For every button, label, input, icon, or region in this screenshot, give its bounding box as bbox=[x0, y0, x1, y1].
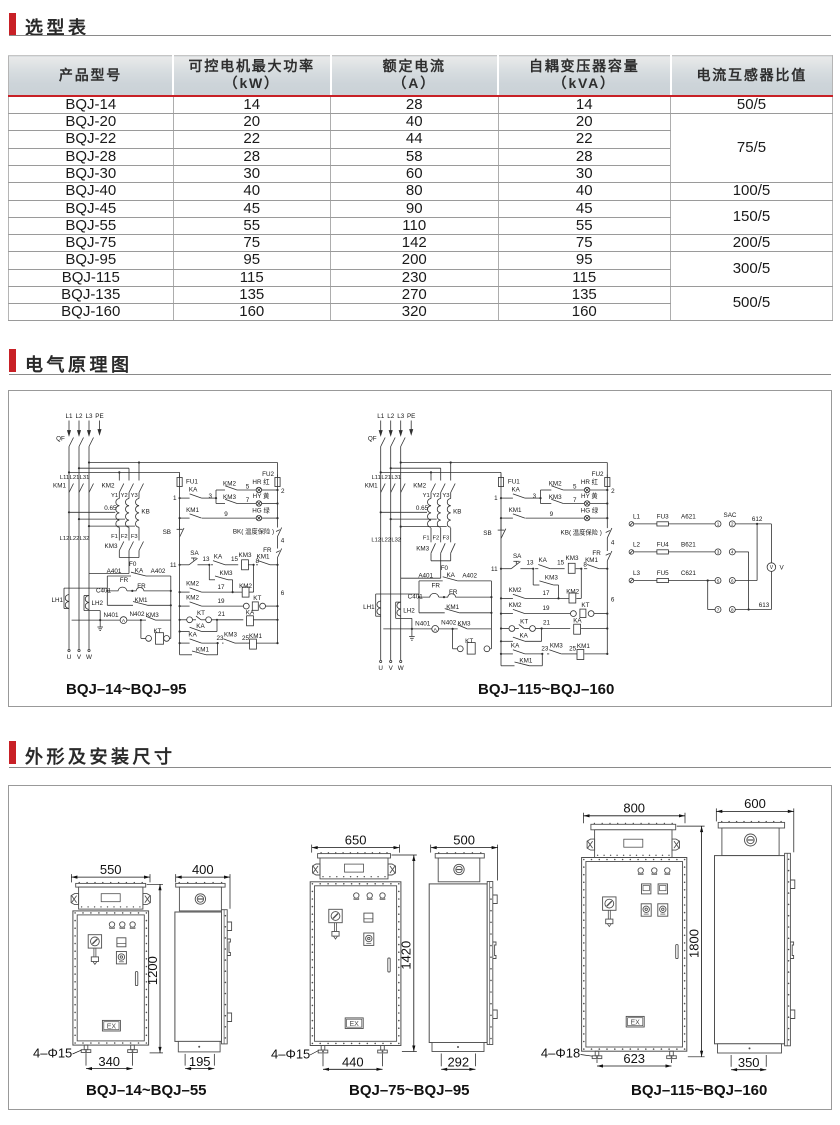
svg-text:1200: 1200 bbox=[145, 956, 160, 985]
svg-text:KM1: KM1 bbox=[577, 643, 590, 650]
svg-text:6: 6 bbox=[731, 578, 734, 583]
svg-text:L1: L1 bbox=[65, 413, 73, 420]
svg-text:FR: FR bbox=[431, 582, 440, 589]
svg-text:BK( 温度保险 ): BK( 温度保险 ) bbox=[233, 526, 274, 535]
svg-text:KB( 温度保险 ): KB( 温度保险 ) bbox=[561, 527, 602, 536]
svg-text:17: 17 bbox=[217, 583, 225, 590]
svg-text:KM2: KM2 bbox=[186, 580, 199, 587]
svg-text:HG 绿: HG 绿 bbox=[252, 505, 270, 514]
svg-text:N401: N401 bbox=[415, 620, 431, 627]
svg-text:KM2: KM2 bbox=[566, 588, 579, 595]
svg-text:L3: L3 bbox=[633, 570, 641, 577]
svg-text:V: V bbox=[770, 565, 774, 571]
svg-text:KA: KA bbox=[189, 486, 198, 493]
svg-text:Y2: Y2 bbox=[121, 493, 128, 499]
svg-text:FR: FR bbox=[137, 583, 146, 590]
svg-text:V: V bbox=[389, 665, 394, 672]
svg-text:L11: L11 bbox=[372, 475, 381, 481]
svg-text:7: 7 bbox=[573, 497, 577, 504]
svg-text:FU4: FU4 bbox=[657, 541, 669, 548]
svg-text:613: 613 bbox=[759, 602, 770, 609]
svg-text:L31: L31 bbox=[391, 475, 401, 481]
svg-text:Y3: Y3 bbox=[442, 493, 449, 499]
svg-text:5: 5 bbox=[573, 483, 577, 490]
svg-text:HY 黄: HY 黄 bbox=[253, 490, 270, 499]
svg-text:4–Φ18: 4–Φ18 bbox=[541, 1046, 580, 1061]
svg-text:F1: F1 bbox=[423, 535, 430, 541]
svg-text:KB: KB bbox=[141, 508, 149, 515]
svg-text:HY 黄: HY 黄 bbox=[581, 490, 598, 499]
svg-text:KM3: KM3 bbox=[105, 543, 118, 550]
svg-text:KA: KA bbox=[196, 623, 205, 630]
svg-text:W: W bbox=[86, 654, 92, 661]
svg-text:KM2: KM2 bbox=[223, 480, 236, 487]
svg-text:SAC: SAC bbox=[724, 512, 737, 519]
svg-text:623: 623 bbox=[623, 1051, 645, 1066]
svg-text:L3: L3 bbox=[85, 413, 93, 420]
svg-text:N401: N401 bbox=[103, 612, 119, 619]
svg-text:L31: L31 bbox=[80, 475, 90, 481]
svg-text:KM2: KM2 bbox=[509, 602, 522, 609]
svg-text:600: 600 bbox=[744, 796, 766, 811]
svg-text:L11: L11 bbox=[60, 475, 69, 481]
svg-text:KM3: KM3 bbox=[224, 631, 237, 638]
svg-text:FU1: FU1 bbox=[186, 478, 198, 485]
svg-text:KA: KA bbox=[214, 553, 223, 560]
svg-text:17: 17 bbox=[542, 589, 550, 596]
svg-text:KT: KT bbox=[253, 595, 261, 602]
svg-text:FU5: FU5 bbox=[657, 570, 669, 577]
svg-text:V: V bbox=[780, 564, 785, 571]
svg-text:KA: KA bbox=[188, 631, 197, 638]
svg-text:4: 4 bbox=[731, 549, 734, 554]
svg-text:340: 340 bbox=[98, 1054, 120, 1069]
svg-text:19: 19 bbox=[542, 605, 550, 612]
svg-text:A621: A621 bbox=[681, 513, 696, 520]
svg-text:KM3: KM3 bbox=[549, 494, 562, 501]
svg-text:KM3: KM3 bbox=[220, 569, 233, 576]
svg-text:KT: KT bbox=[465, 637, 473, 644]
svg-text:W: W bbox=[398, 665, 404, 672]
svg-text:KM3: KM3 bbox=[416, 545, 429, 552]
svg-text:L12: L12 bbox=[60, 536, 70, 542]
svg-text:FU3: FU3 bbox=[657, 513, 669, 520]
svg-text:19: 19 bbox=[217, 597, 225, 604]
svg-text:PE: PE bbox=[407, 413, 415, 420]
svg-text:F3: F3 bbox=[131, 534, 138, 540]
svg-text:SA: SA bbox=[190, 550, 199, 557]
svg-text:0.65: 0.65 bbox=[104, 505, 117, 512]
svg-text:612: 612 bbox=[752, 516, 763, 523]
svg-text:KA: KA bbox=[573, 617, 582, 624]
svg-text:KM2: KM2 bbox=[549, 480, 562, 487]
svg-text:HG 绿: HG 绿 bbox=[581, 505, 599, 514]
svg-text:KA: KA bbox=[519, 632, 528, 639]
svg-text:KM1: KM1 bbox=[519, 657, 532, 664]
svg-text:U: U bbox=[378, 665, 383, 672]
svg-text:Y3: Y3 bbox=[131, 493, 138, 499]
svg-text:KA: KA bbox=[246, 609, 255, 616]
svg-text:KM1: KM1 bbox=[585, 557, 598, 564]
svg-text:F2: F2 bbox=[121, 534, 128, 540]
svg-text:4: 4 bbox=[611, 539, 615, 546]
svg-text:KT: KT bbox=[520, 618, 528, 625]
svg-text:F2: F2 bbox=[433, 535, 440, 541]
svg-text:FU1: FU1 bbox=[508, 478, 520, 485]
svg-text:KM2: KM2 bbox=[239, 582, 252, 589]
svg-text:KA: KA bbox=[538, 557, 547, 564]
svg-text:4–Φ15: 4–Φ15 bbox=[33, 1046, 72, 1061]
svg-text:C621: C621 bbox=[681, 570, 697, 577]
svg-text:KM3: KM3 bbox=[566, 555, 579, 562]
svg-text:9: 9 bbox=[224, 511, 228, 518]
svg-text:L1: L1 bbox=[633, 513, 641, 520]
svg-text:2: 2 bbox=[611, 488, 615, 495]
svg-text:1420: 1420 bbox=[399, 941, 414, 970]
svg-text:1: 1 bbox=[494, 495, 498, 502]
svg-text:N402: N402 bbox=[441, 619, 457, 626]
svg-text:L22: L22 bbox=[70, 536, 80, 542]
svg-text:A402: A402 bbox=[151, 568, 166, 575]
svg-text:FU2: FU2 bbox=[262, 471, 274, 478]
svg-text:EX: EX bbox=[350, 1021, 360, 1028]
svg-text:25: 25 bbox=[569, 645, 577, 652]
svg-text:195: 195 bbox=[189, 1054, 211, 1069]
svg-text:L21: L21 bbox=[381, 475, 391, 481]
svg-text:500: 500 bbox=[453, 832, 475, 847]
svg-text:3: 3 bbox=[717, 549, 720, 554]
svg-text:650: 650 bbox=[345, 832, 367, 847]
svg-text:FU2: FU2 bbox=[592, 471, 604, 478]
svg-text:KM2: KM2 bbox=[413, 482, 426, 489]
svg-text:LH1: LH1 bbox=[363, 604, 375, 611]
svg-text:SB: SB bbox=[483, 530, 491, 537]
svg-text:7: 7 bbox=[717, 607, 720, 612]
svg-text:SA: SA bbox=[513, 553, 522, 560]
svg-text:FR: FR bbox=[592, 549, 601, 556]
svg-text:11: 11 bbox=[491, 565, 498, 572]
svg-text:1: 1 bbox=[173, 495, 177, 502]
svg-text:LH2: LH2 bbox=[403, 607, 415, 614]
svg-text:V: V bbox=[77, 654, 82, 661]
svg-text:U: U bbox=[67, 654, 72, 661]
svg-text:L22: L22 bbox=[381, 537, 391, 543]
svg-text:KA: KA bbox=[511, 642, 520, 649]
svg-text:F1: F1 bbox=[111, 534, 118, 540]
svg-text:KM1: KM1 bbox=[446, 604, 459, 611]
svg-text:KM3: KM3 bbox=[239, 551, 252, 558]
svg-text:L3: L3 bbox=[397, 413, 405, 420]
svg-text:L2: L2 bbox=[75, 413, 83, 420]
svg-text:15: 15 bbox=[557, 559, 565, 566]
svg-text:Y1: Y1 bbox=[111, 493, 118, 499]
svg-text:Y2: Y2 bbox=[432, 493, 439, 499]
svg-text:F3: F3 bbox=[443, 535, 450, 541]
svg-text:5: 5 bbox=[717, 578, 720, 583]
svg-text:KM1: KM1 bbox=[186, 507, 199, 514]
svg-text:KM3: KM3 bbox=[545, 574, 558, 581]
svg-text:LH2: LH2 bbox=[92, 600, 104, 607]
svg-text:9: 9 bbox=[550, 511, 554, 518]
svg-text:L32: L32 bbox=[80, 536, 90, 542]
svg-text:550: 550 bbox=[100, 862, 122, 877]
svg-text:QF: QF bbox=[368, 435, 377, 442]
svg-text:L32: L32 bbox=[391, 537, 401, 543]
svg-text:Y1: Y1 bbox=[423, 493, 430, 499]
svg-text:QF: QF bbox=[56, 435, 65, 442]
svg-text:4–Φ15: 4–Φ15 bbox=[271, 1047, 310, 1062]
svg-text:SB: SB bbox=[163, 529, 171, 536]
svg-text:A402: A402 bbox=[462, 572, 477, 579]
svg-text:1800: 1800 bbox=[686, 929, 701, 958]
svg-text:23: 23 bbox=[216, 634, 224, 641]
svg-text:EX: EX bbox=[107, 1023, 117, 1030]
svg-text:KM2: KM2 bbox=[509, 586, 522, 593]
svg-text:21: 21 bbox=[543, 619, 551, 626]
svg-text:6: 6 bbox=[281, 589, 285, 596]
svg-text:KM1: KM1 bbox=[53, 482, 66, 489]
svg-text:B621: B621 bbox=[681, 541, 696, 548]
svg-text:N402: N402 bbox=[129, 611, 145, 618]
svg-text:KM1: KM1 bbox=[509, 507, 522, 514]
svg-text:4: 4 bbox=[281, 537, 285, 544]
svg-text:6: 6 bbox=[611, 596, 615, 603]
svg-text:5: 5 bbox=[246, 483, 250, 490]
svg-text:F0: F0 bbox=[441, 565, 449, 572]
svg-text:KM1: KM1 bbox=[135, 597, 148, 604]
svg-text:KM1: KM1 bbox=[365, 482, 378, 489]
svg-text:2: 2 bbox=[281, 488, 285, 495]
svg-text:2: 2 bbox=[731, 521, 734, 526]
svg-text:KT: KT bbox=[581, 602, 589, 609]
svg-text:0.65: 0.65 bbox=[416, 505, 429, 512]
svg-text:23: 23 bbox=[541, 645, 549, 652]
svg-text:800: 800 bbox=[623, 801, 645, 816]
svg-text:1: 1 bbox=[717, 521, 720, 526]
svg-text:350: 350 bbox=[738, 1055, 760, 1070]
svg-text:KM2: KM2 bbox=[102, 482, 115, 489]
svg-text:L12: L12 bbox=[371, 537, 381, 543]
svg-text:L1: L1 bbox=[377, 413, 385, 420]
svg-text:A401: A401 bbox=[107, 568, 122, 575]
svg-text:KM3: KM3 bbox=[146, 612, 159, 619]
svg-text:L2: L2 bbox=[633, 541, 641, 548]
svg-text:PE: PE bbox=[95, 413, 103, 420]
svg-text:KM3: KM3 bbox=[550, 642, 563, 649]
svg-text:13: 13 bbox=[202, 556, 210, 563]
svg-text:11: 11 bbox=[170, 561, 177, 568]
svg-text:FR: FR bbox=[120, 577, 129, 584]
svg-text:KT: KT bbox=[153, 628, 161, 635]
svg-text:7: 7 bbox=[246, 497, 250, 504]
svg-text:HR 红: HR 红 bbox=[252, 477, 270, 486]
svg-text:440: 440 bbox=[342, 1055, 364, 1070]
svg-text:LH1: LH1 bbox=[51, 597, 63, 604]
svg-text:C401: C401 bbox=[408, 593, 424, 600]
svg-text:KM2: KM2 bbox=[186, 594, 199, 601]
svg-text:A401: A401 bbox=[418, 572, 433, 579]
svg-text:L2: L2 bbox=[387, 413, 395, 420]
svg-text:3: 3 bbox=[208, 492, 212, 499]
svg-text:292: 292 bbox=[447, 1055, 469, 1070]
svg-text:KM1: KM1 bbox=[257, 553, 270, 560]
svg-text:KM3: KM3 bbox=[223, 494, 236, 501]
svg-text:15: 15 bbox=[231, 556, 239, 563]
svg-text:EX: EX bbox=[631, 1019, 641, 1026]
svg-text:KA: KA bbox=[511, 486, 520, 493]
svg-text:HR 红: HR 红 bbox=[581, 477, 599, 486]
svg-text:13: 13 bbox=[526, 559, 534, 566]
svg-text:KT: KT bbox=[197, 610, 205, 617]
svg-text:FR: FR bbox=[449, 588, 458, 595]
svg-text:3: 3 bbox=[533, 492, 537, 499]
svg-text:KB: KB bbox=[453, 508, 461, 515]
svg-text:400: 400 bbox=[192, 862, 214, 877]
svg-text:21: 21 bbox=[218, 611, 226, 618]
svg-text:8: 8 bbox=[731, 607, 734, 612]
svg-text:KM3: KM3 bbox=[458, 620, 471, 627]
svg-text:L21: L21 bbox=[70, 475, 80, 481]
